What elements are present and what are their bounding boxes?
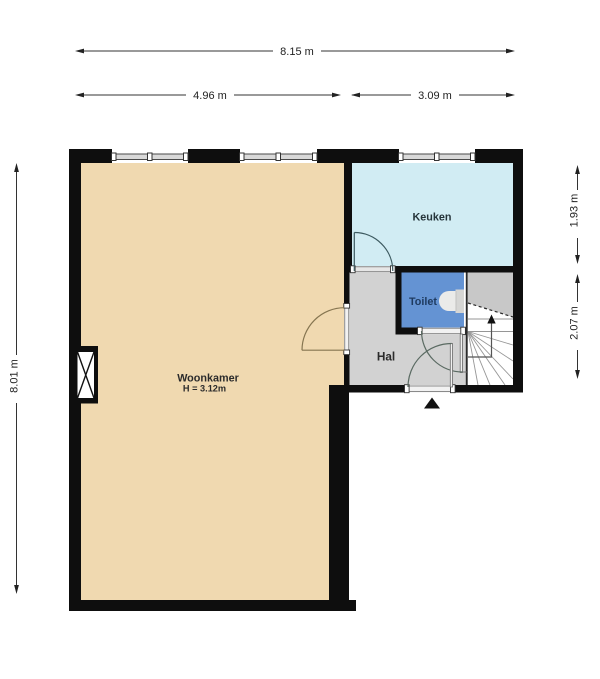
svg-text:Toilet: Toilet (409, 296, 437, 308)
svg-text:4.96 m: 4.96 m (193, 90, 227, 102)
svg-text:1.93 m: 1.93 m (569, 194, 581, 228)
svg-text:8.15 m: 8.15 m (280, 46, 314, 58)
svg-text:Hal: Hal (377, 350, 395, 364)
svg-text:3.09 m: 3.09 m (418, 90, 452, 102)
svg-text:2.07 m: 2.07 m (569, 306, 581, 340)
svg-text:8.01 m: 8.01 m (9, 359, 21, 393)
svg-text:Keuken: Keuken (412, 212, 451, 224)
svg-text:H = 3.12m: H = 3.12m (183, 384, 226, 394)
